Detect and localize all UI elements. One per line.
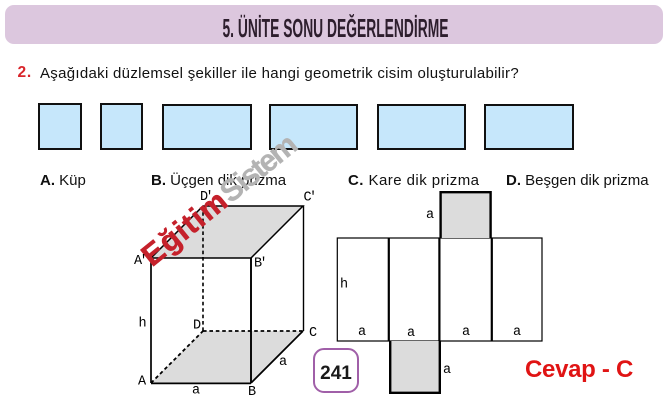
svg-text:a: a [462, 325, 470, 340]
svg-text:A': A' [134, 254, 148, 269]
svg-text:a: a [279, 355, 287, 370]
svg-text:a: a [426, 208, 434, 223]
svg-text:B': B' [254, 257, 268, 272]
svg-text:C': C' [304, 191, 318, 206]
svg-text:a: a [443, 363, 451, 378]
svg-text:D': D' [200, 190, 214, 205]
svg-text:C: C [309, 326, 317, 341]
svg-text:a: a [513, 325, 521, 340]
svg-text:a: a [192, 384, 200, 399]
svg-text:a: a [407, 326, 415, 341]
svg-text:D: D [193, 319, 201, 334]
svg-text:h: h [340, 278, 348, 293]
svg-text:A: A [138, 375, 147, 390]
svg-text:B: B [248, 385, 256, 400]
svg-text:a: a [358, 325, 366, 340]
svg-text:h: h [139, 317, 147, 332]
